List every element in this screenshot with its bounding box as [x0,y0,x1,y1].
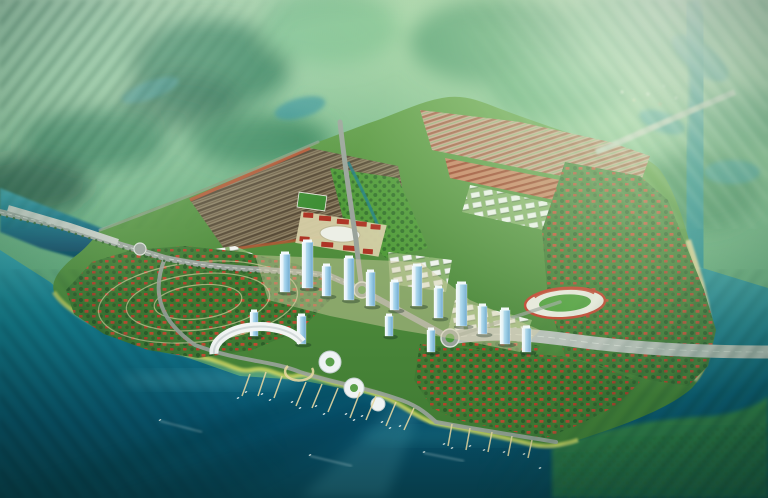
scene-svg [0,0,768,498]
roundabout [134,243,146,255]
masterplan-aerial-render [0,0,768,498]
right-river [688,2,702,274]
